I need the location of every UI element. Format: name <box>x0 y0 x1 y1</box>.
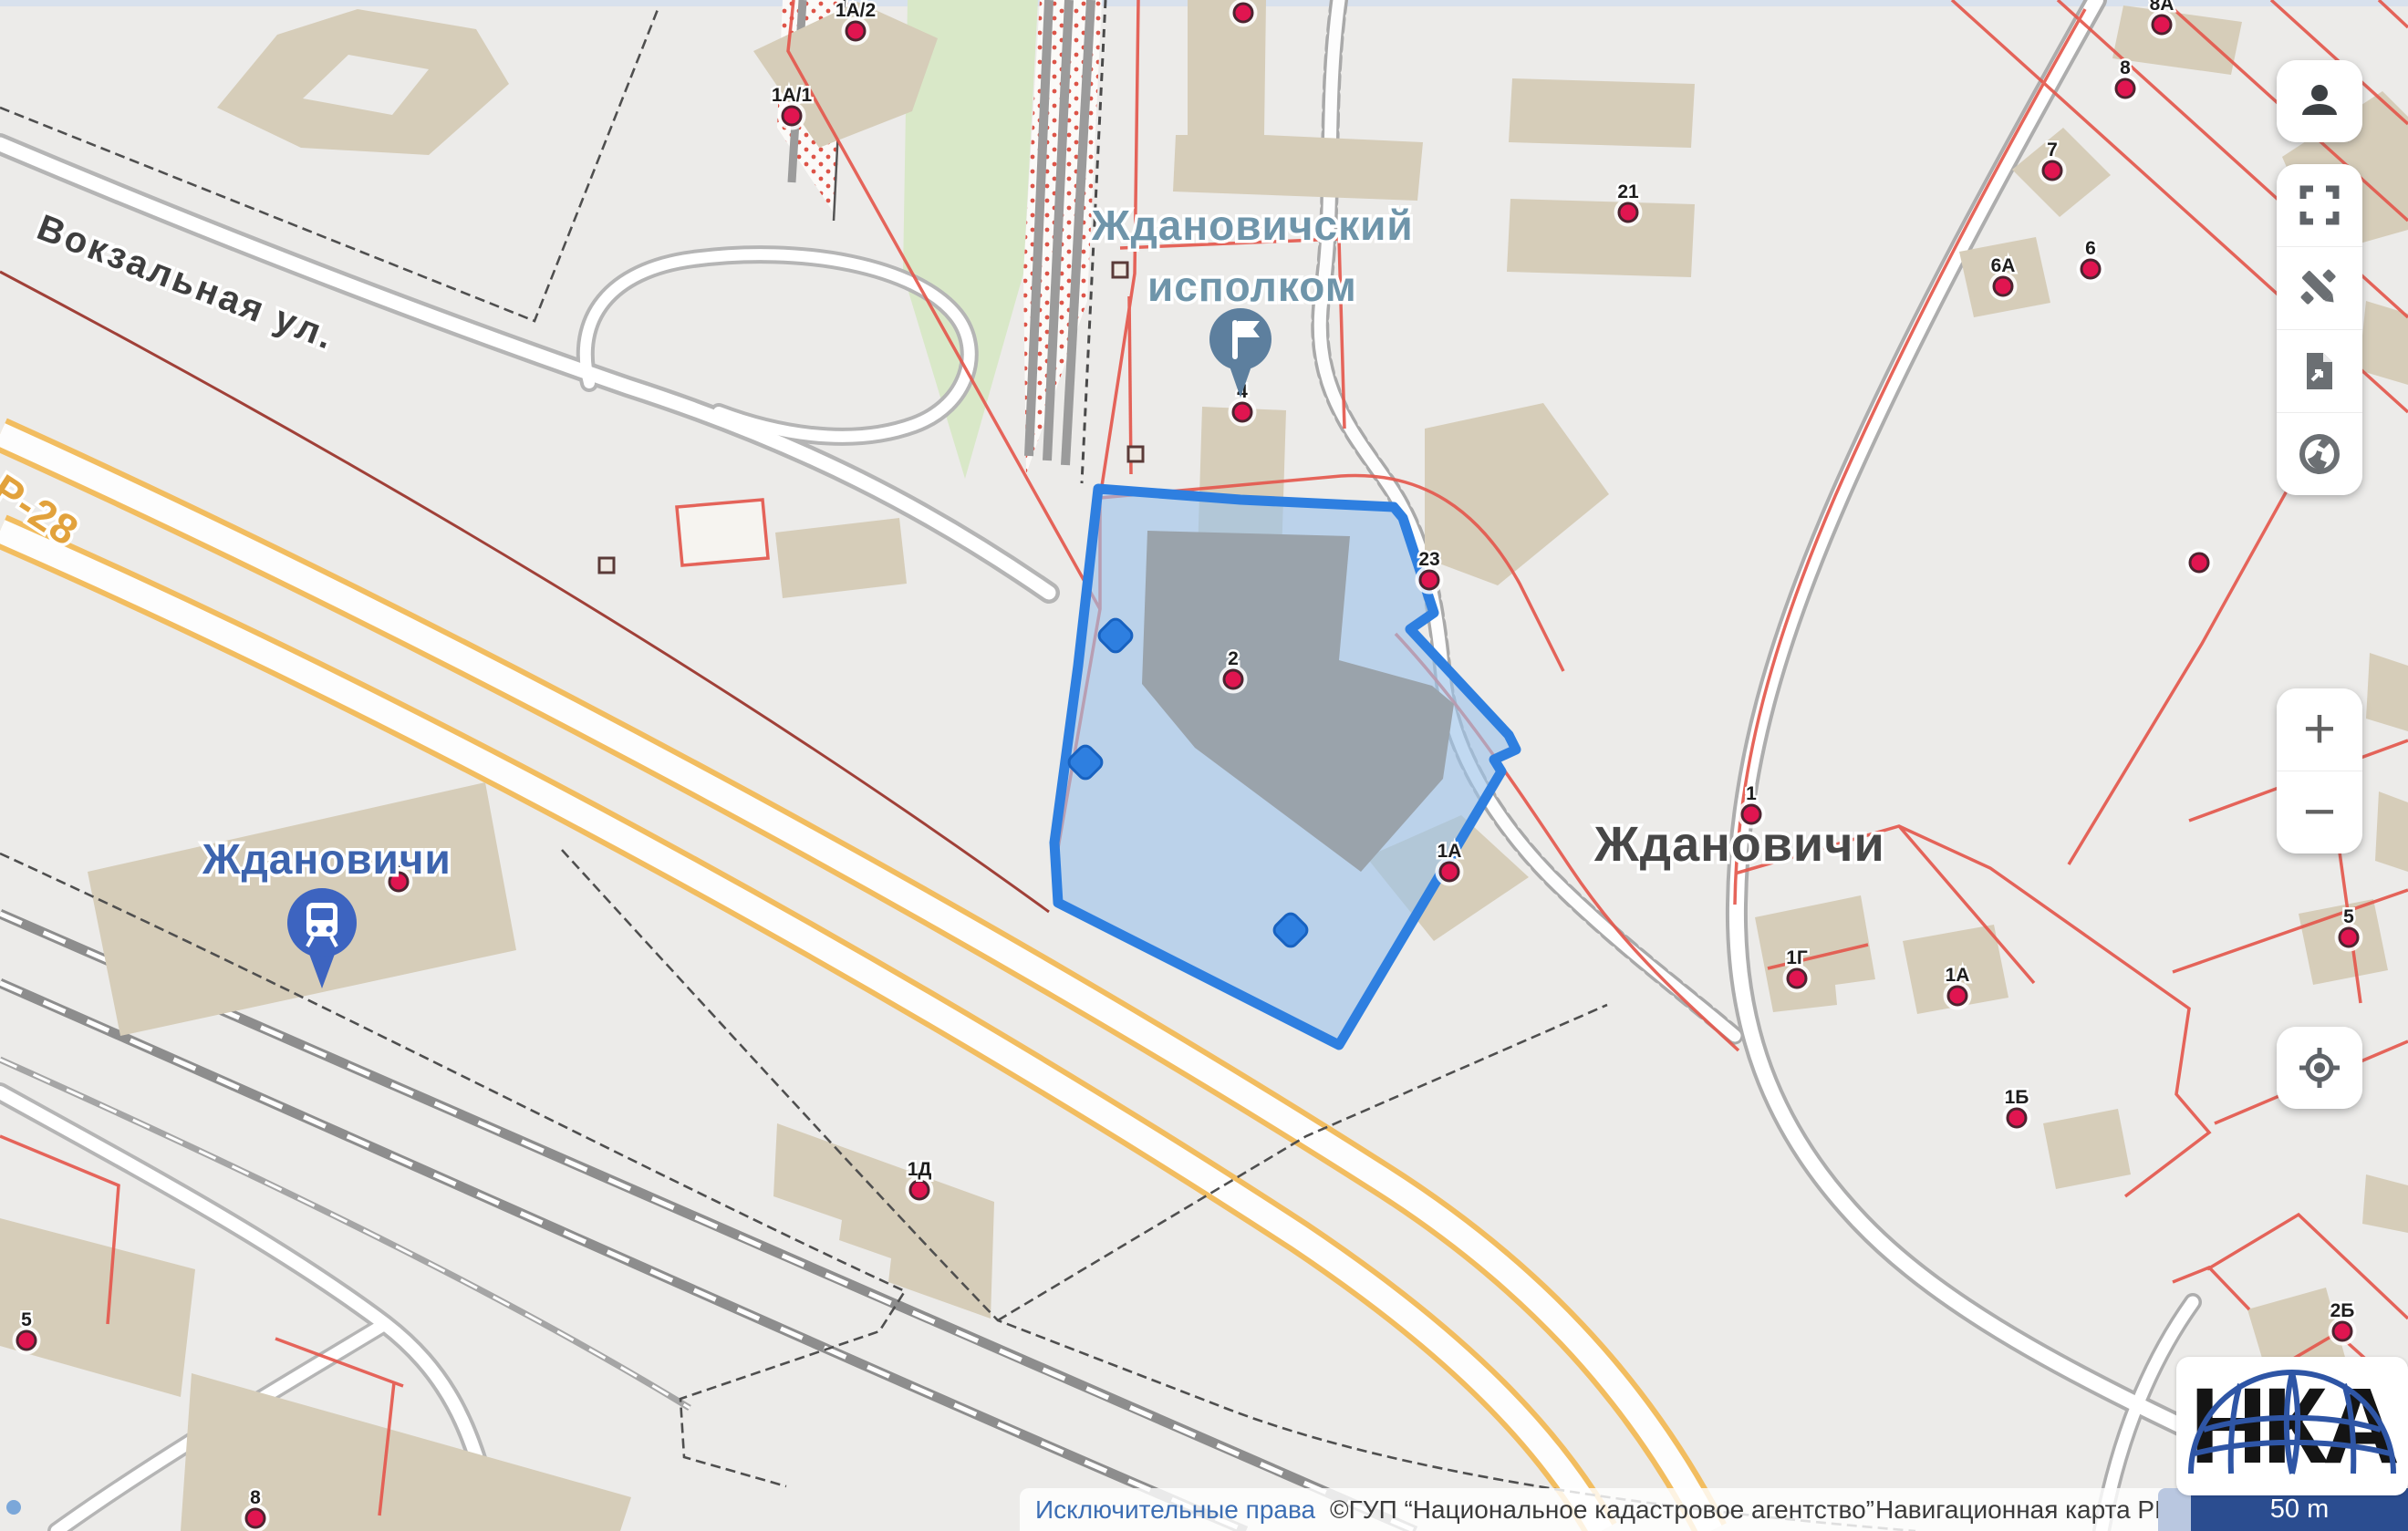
house-number-label: 1А/2 <box>836 0 876 21</box>
globe-button[interactable] <box>2277 412 2362 495</box>
measure-tools-icon <box>2298 266 2341 310</box>
house-number-label: 1Г <box>1786 947 1808 968</box>
zoom-in-label: + <box>2303 702 2336 757</box>
locate-button[interactable] <box>2277 1027 2362 1109</box>
house-number-marker[interactable]: 1А <box>1946 965 1970 1008</box>
house-number-label: 23 <box>1418 549 1439 570</box>
shed-symbol <box>1113 263 1127 277</box>
measure-tools-button[interactable] <box>2277 246 2362 329</box>
house-number-marker[interactable]: 1Б <box>2005 1087 2029 1130</box>
house-number-label: 1Б <box>2005 1087 2029 1108</box>
fullscreen-button[interactable] <box>2277 164 2362 246</box>
globe-icon <box>2299 433 2341 475</box>
shed-symbol <box>1128 447 1143 461</box>
house-number-marker[interactable]: 6А <box>1991 255 2016 298</box>
house-number-marker[interactable]: 23 <box>1417 549 1441 592</box>
house-number-label: 5 <box>2343 906 2354 927</box>
house-number-marker[interactable]: 21 <box>1616 181 1640 224</box>
house-number-label: 21 <box>1617 181 1639 202</box>
house-number-label: 2 <box>1228 648 1239 669</box>
house-number-label: 5 <box>21 1309 32 1330</box>
map-canvas[interactable]: 1А/21А/1218А8766А23141Б21А1Г1А1Б1Д2Б585 … <box>0 0 2408 1531</box>
survey-point <box>6 1500 21 1515</box>
copyright-text: ©ГУП “Национальное кадастровое агентство… <box>1330 1488 1874 1531</box>
house-number-marker[interactable]: 1Д <box>908 1159 932 1202</box>
map-app: 1А/21А/1218А8766А23141Б21А1Г1А1Б1Д2Б585 … <box>0 0 2408 1531</box>
house-number-label: 6 <box>2085 238 2096 259</box>
map-label: исполком <box>1147 263 1357 310</box>
nka-logo: НКА <box>2176 1357 2408 1495</box>
zoom-out-button[interactable]: − <box>2277 771 2362 853</box>
file-export-icon <box>2299 351 2340 391</box>
zoom-in-button[interactable]: + <box>2277 688 2362 771</box>
house-number-label: 1А <box>1946 965 1970 986</box>
house-number-label: 1Д <box>908 1159 932 1180</box>
map-label: Ждановичи <box>202 835 451 883</box>
house-number-marker[interactable]: 2Б <box>2330 1300 2355 1343</box>
house-number-label: 1А/1 <box>772 85 813 106</box>
shed-symbol <box>599 558 614 573</box>
person-icon <box>2299 80 2341 122</box>
house-number-label: 1А <box>1438 841 1462 862</box>
house-number-marker[interactable]: 1А <box>1438 841 1462 884</box>
account-button[interactable] <box>2277 60 2362 142</box>
house-number-marker[interactable] <box>2187 551 2211 574</box>
house-number-label: 8А <box>2150 0 2174 15</box>
house-number-marker[interactable]: 1Г <box>1785 947 1809 990</box>
house-number-label: 7 <box>2047 140 2058 160</box>
house-number-label: 1 <box>1746 783 1757 804</box>
scalebar-label: 50 m <box>2270 1495 2329 1525</box>
house-number-marker[interactable]: 8А <box>2150 0 2174 36</box>
map-name-text: Навигационная карта РБ <box>1875 1488 2171 1531</box>
map-label: Ждановичский <box>1091 202 1414 249</box>
house-number-label: 8 <box>250 1487 261 1508</box>
exclusive-rights-link[interactable]: Исключительные права <box>1035 1488 1315 1531</box>
zoom-out-label: − <box>2303 785 2336 840</box>
fullscreen-icon <box>2299 185 2340 225</box>
house-number-label: 6А <box>1991 255 2016 276</box>
export-file-button[interactable] <box>2277 329 2362 412</box>
house-number-marker[interactable] <box>1231 1 1255 25</box>
house-number-label: 2Б <box>2330 1300 2355 1321</box>
locate-icon <box>2298 1046 2341 1090</box>
house-number-label: 8 <box>2120 57 2131 78</box>
map-label: Ждановичи <box>1593 817 1885 872</box>
